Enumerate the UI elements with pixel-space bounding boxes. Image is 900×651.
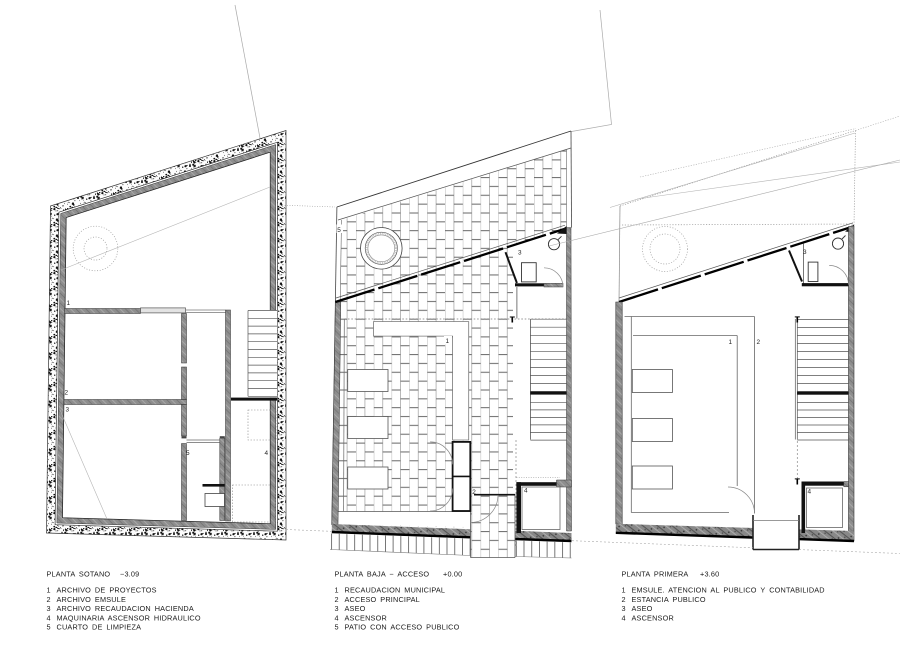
svg-text:1: 1 <box>446 338 450 345</box>
svg-text:1EMSULE. ATENCION AL PUBLICO Y: 1EMSULE. ATENCION AL PUBLICO Y CONTABILI… <box>622 586 825 595</box>
svg-text:4: 4 <box>808 489 812 496</box>
svg-text:2ARCHIVO EMSULE: 2ARCHIVO EMSULE <box>47 595 127 604</box>
svg-text:1RECAUDACION MUNICIPAL: 1RECAUDACION MUNICIPAL <box>335 586 446 595</box>
svg-text:5: 5 <box>337 227 341 234</box>
svg-text:2: 2 <box>472 489 476 496</box>
svg-text:PLANTA BAJA − ACCESO+0.00: PLANTA BAJA − ACCESO+0.00 <box>335 570 463 579</box>
svg-text:1ARCHIVO DE PROYECTOS: 1ARCHIVO DE PROYECTOS <box>47 586 157 595</box>
svg-text:3: 3 <box>803 249 807 256</box>
svg-text:4: 4 <box>524 488 528 495</box>
svg-text:2ESTANCIA PUBLICO: 2ESTANCIA PUBLICO <box>622 595 706 604</box>
svg-text:3ARCHIVO RECAUDACION HACIENDA: 3ARCHIVO RECAUDACION HACIENDA <box>47 604 194 613</box>
svg-text:2: 2 <box>757 339 761 346</box>
svg-text:1: 1 <box>67 300 71 307</box>
svg-text:2ACCESO PRINCIPAL: 2ACCESO PRINCIPAL <box>335 595 420 604</box>
svg-text:1: 1 <box>729 339 733 346</box>
svg-text:3: 3 <box>66 407 70 414</box>
svg-text:5PATIO CON ACCESO PUBLICO: 5PATIO CON ACCESO PUBLICO <box>335 623 460 632</box>
svg-text:4MAQUINARIA ASCENSOR HIDRAULIC: 4MAQUINARIA ASCENSOR HIDRAULICO <box>47 613 201 622</box>
svg-text:3: 3 <box>518 250 522 257</box>
svg-text:5CUARTO DE LIMPIEZA: 5CUARTO DE LIMPIEZA <box>47 623 142 632</box>
svg-text:4: 4 <box>265 450 269 457</box>
svg-text:PLANTA SOTANO−3.09: PLANTA SOTANO−3.09 <box>47 570 140 579</box>
svg-text:PLANTA PRIMERA+3.60: PLANTA PRIMERA+3.60 <box>622 570 720 579</box>
svg-text:5: 5 <box>186 450 190 457</box>
svg-text:2: 2 <box>65 390 69 397</box>
